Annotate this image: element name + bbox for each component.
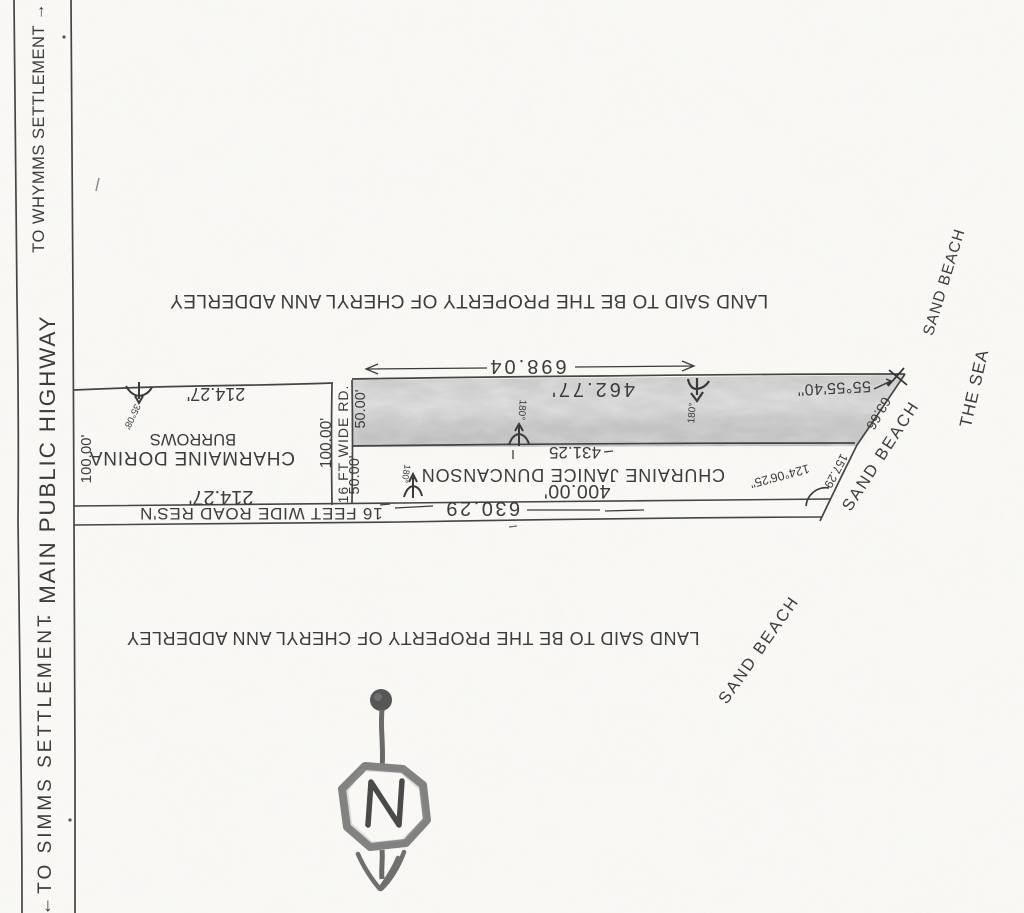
svg-text:698.04: 698.04 bbox=[487, 355, 566, 377]
svg-text:431.25: 431.25 bbox=[549, 443, 601, 462]
svg-text:TO WHYMMS SETTLEMENT →: TO WHYMMS SETTLEMENT → bbox=[30, 3, 48, 253]
svg-text:50.00': 50.00' bbox=[347, 455, 363, 494]
svg-text:630.29: 630.29 bbox=[444, 497, 520, 519]
svg-text:214.27': 214.27' bbox=[187, 384, 246, 404]
svg-text:100.00': 100.00' bbox=[318, 418, 335, 468]
svg-text:100.00': 100.00' bbox=[78, 434, 95, 483]
svg-text:180°: 180° bbox=[515, 399, 528, 421]
svg-text:· MAIN PUBLIC HIGHWAY: · MAIN PUBLIC HIGHWAY bbox=[35, 315, 60, 622]
svg-text:LAND SAID TO BE THE PROPERTY O: LAND SAID TO BE THE PROPERTY OF CHERYL A… bbox=[126, 628, 699, 648]
svg-text:LAND SAID TO BE THE PROPERTY O: LAND SAID TO BE THE PROPERTY OF CHERYL A… bbox=[170, 290, 768, 311]
svg-text:180°: 180° bbox=[686, 402, 699, 424]
svg-text:462.77': 462.77' bbox=[549, 378, 635, 400]
svg-text:←TO SIMMS SETTLEMENT: ←TO SIMMS SETTLEMENT bbox=[35, 612, 56, 913]
svg-text:400.00': 400.00' bbox=[544, 480, 611, 502]
svg-text:50.00': 50.00' bbox=[353, 389, 369, 428]
svg-text:16 FEET WIDE ROAD RES'N: 16 FEET WIDE ROAD RES'N bbox=[139, 504, 382, 523]
svg-text:CHARMAINE DORINA: CHARMAINE DORINA bbox=[89, 447, 295, 468]
svg-text:BURROWS: BURROWS bbox=[150, 430, 236, 448]
